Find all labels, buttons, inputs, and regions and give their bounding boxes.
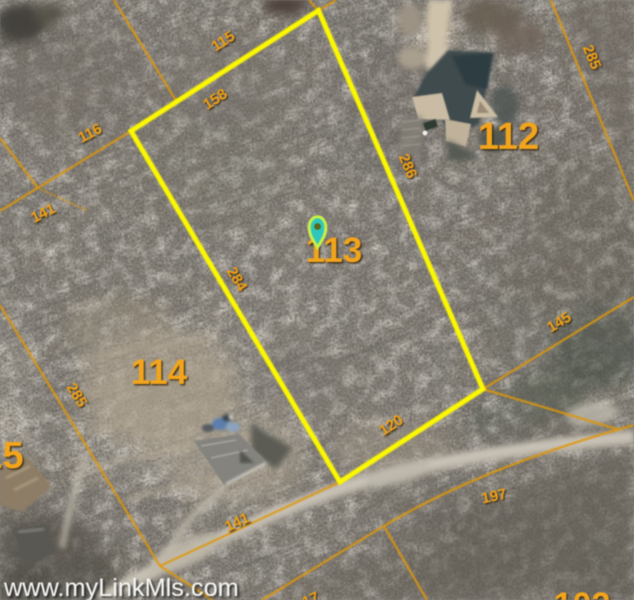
svg-text:www.myLinkMls.com: www.myLinkMls.com bbox=[3, 574, 239, 600]
svg-text:115: 115 bbox=[0, 435, 24, 477]
svg-text:102: 102 bbox=[554, 586, 611, 600]
svg-text:112: 112 bbox=[478, 116, 539, 158]
svg-text:114: 114 bbox=[131, 353, 188, 392]
